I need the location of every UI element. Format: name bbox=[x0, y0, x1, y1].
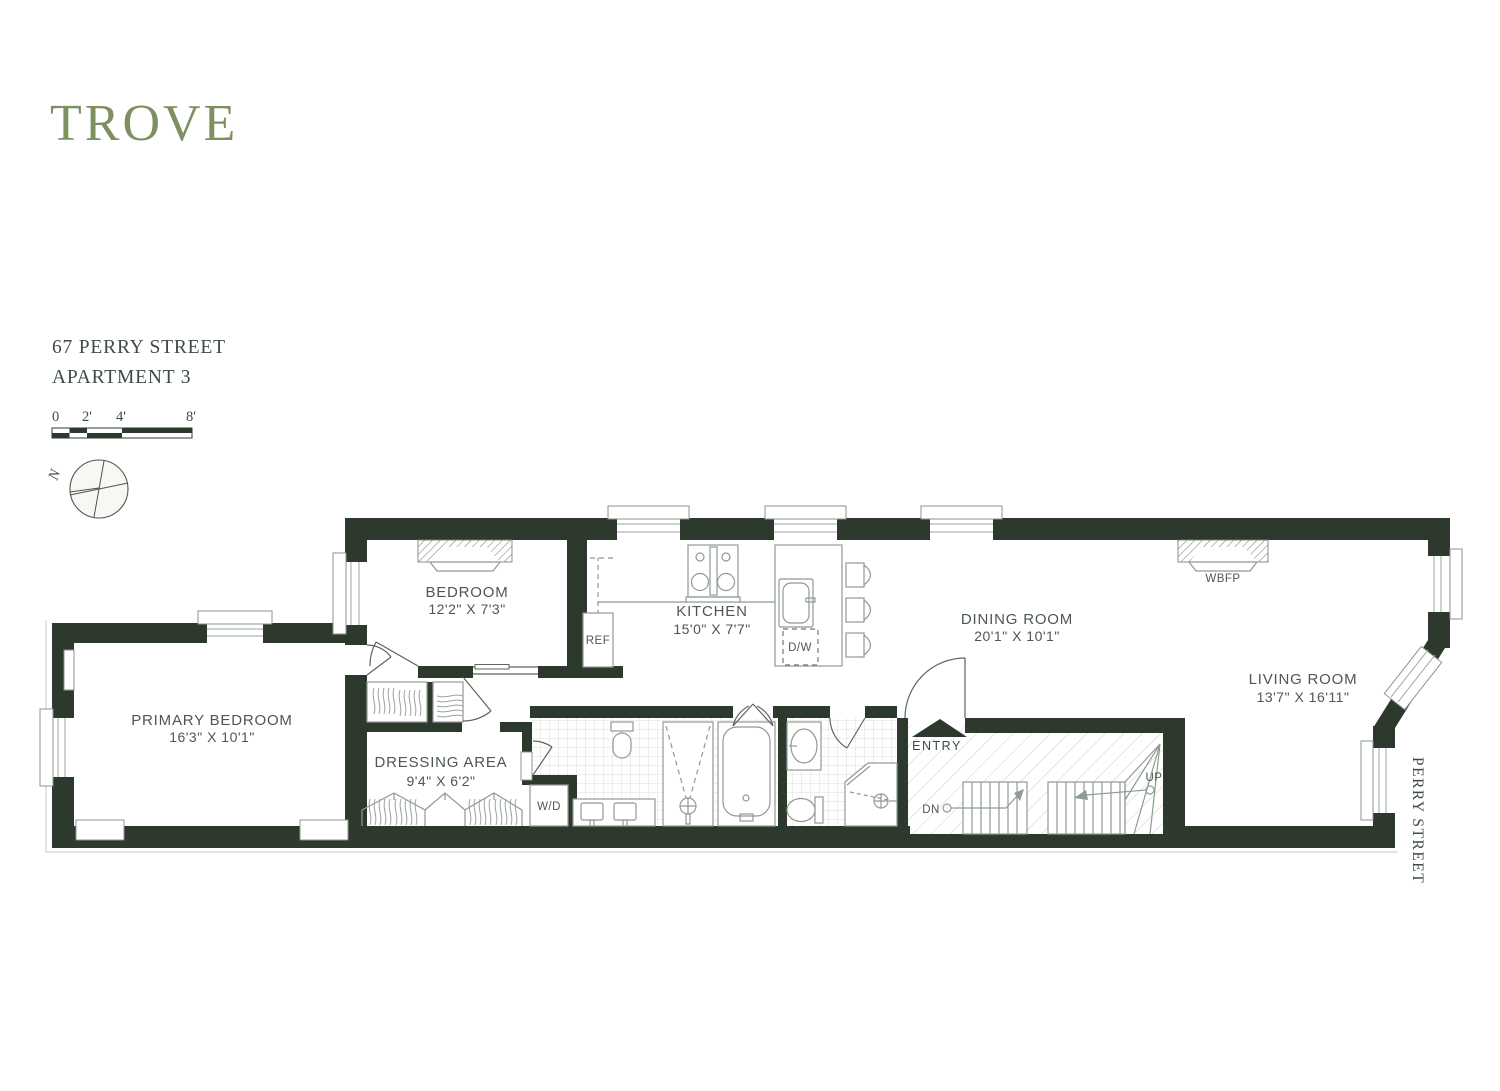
street-label: PERRY STREET bbox=[1409, 757, 1426, 884]
room-label-bedroom: BEDROOM bbox=[425, 584, 508, 601]
toilet-2-icon bbox=[787, 797, 823, 823]
compass: N bbox=[45, 460, 128, 518]
kitchen-sink-icon bbox=[779, 579, 815, 627]
fixture-label-ref: REF bbox=[586, 635, 611, 647]
bedroom-door bbox=[370, 642, 418, 666]
scale-label-0: 0 bbox=[52, 409, 59, 425]
room-dims-kitchen: 15'0" X 7'7" bbox=[673, 621, 750, 637]
bathtub-icon bbox=[718, 722, 775, 826]
fixture-label-wbfp: WBFP bbox=[1205, 573, 1240, 585]
room-dims-dressing-area: 9'4" X 6'2" bbox=[406, 773, 475, 789]
entry-door bbox=[905, 658, 965, 718]
address-line2: APARTMENT 3 bbox=[52, 367, 191, 388]
room-dims-primary-bedroom: 16'3" X 10'1" bbox=[169, 729, 255, 745]
dressing-door bbox=[463, 677, 491, 721]
room-label-dining-room: DINING ROOM bbox=[961, 611, 1073, 628]
compass-north-label: N bbox=[45, 467, 64, 484]
fixture-label-dn: DN bbox=[922, 804, 940, 816]
sink-2-icon bbox=[787, 722, 821, 770]
toilet-icon bbox=[611, 722, 633, 758]
living-room-fireplace-icon bbox=[1178, 540, 1268, 571]
fixture-label-entry: ENTRY bbox=[912, 739, 962, 753]
fixture-label-dw: D/W bbox=[788, 642, 812, 654]
room-label-kitchen: KITCHEN bbox=[676, 603, 747, 620]
scale-label-4: 4' bbox=[116, 409, 126, 425]
scale-label-2: 2' bbox=[82, 409, 92, 425]
floor-plan: TROVE 67 PERRY STREET APARTMENT 3 0 2' 4… bbox=[0, 0, 1500, 1091]
bedroom-fireplace-icon bbox=[418, 540, 512, 571]
fixture-label-up: UP bbox=[1146, 772, 1163, 784]
room-label-dressing-area: DRESSING AREA bbox=[375, 754, 508, 771]
room-dims-bedroom: 12'2" X 7'3" bbox=[428, 601, 505, 617]
room-dims-dining-room: 20'1" X 10'1" bbox=[974, 628, 1060, 644]
scale-bar: 0 2' 4' 8' bbox=[52, 409, 196, 438]
stools bbox=[846, 563, 871, 657]
vanity-icon bbox=[573, 799, 655, 826]
scale-label-8: 8' bbox=[186, 409, 196, 425]
floor-plan-page: TROVE 67 PERRY STREET APARTMENT 3 0 2' 4… bbox=[0, 0, 1500, 1091]
room-label-living-room: LIVING ROOM bbox=[1249, 671, 1358, 688]
stove-icon bbox=[686, 545, 740, 602]
room-dims-living-room: 13'7" X 16'11" bbox=[1257, 689, 1350, 705]
shower-icon bbox=[663, 722, 713, 826]
brand-logo: TROVE bbox=[50, 95, 238, 152]
room-label-primary-bedroom: PRIMARY BEDROOM bbox=[131, 712, 292, 729]
address-line1: 67 PERRY STREET bbox=[52, 337, 226, 358]
fixture-label-wd: W/D bbox=[537, 801, 561, 813]
